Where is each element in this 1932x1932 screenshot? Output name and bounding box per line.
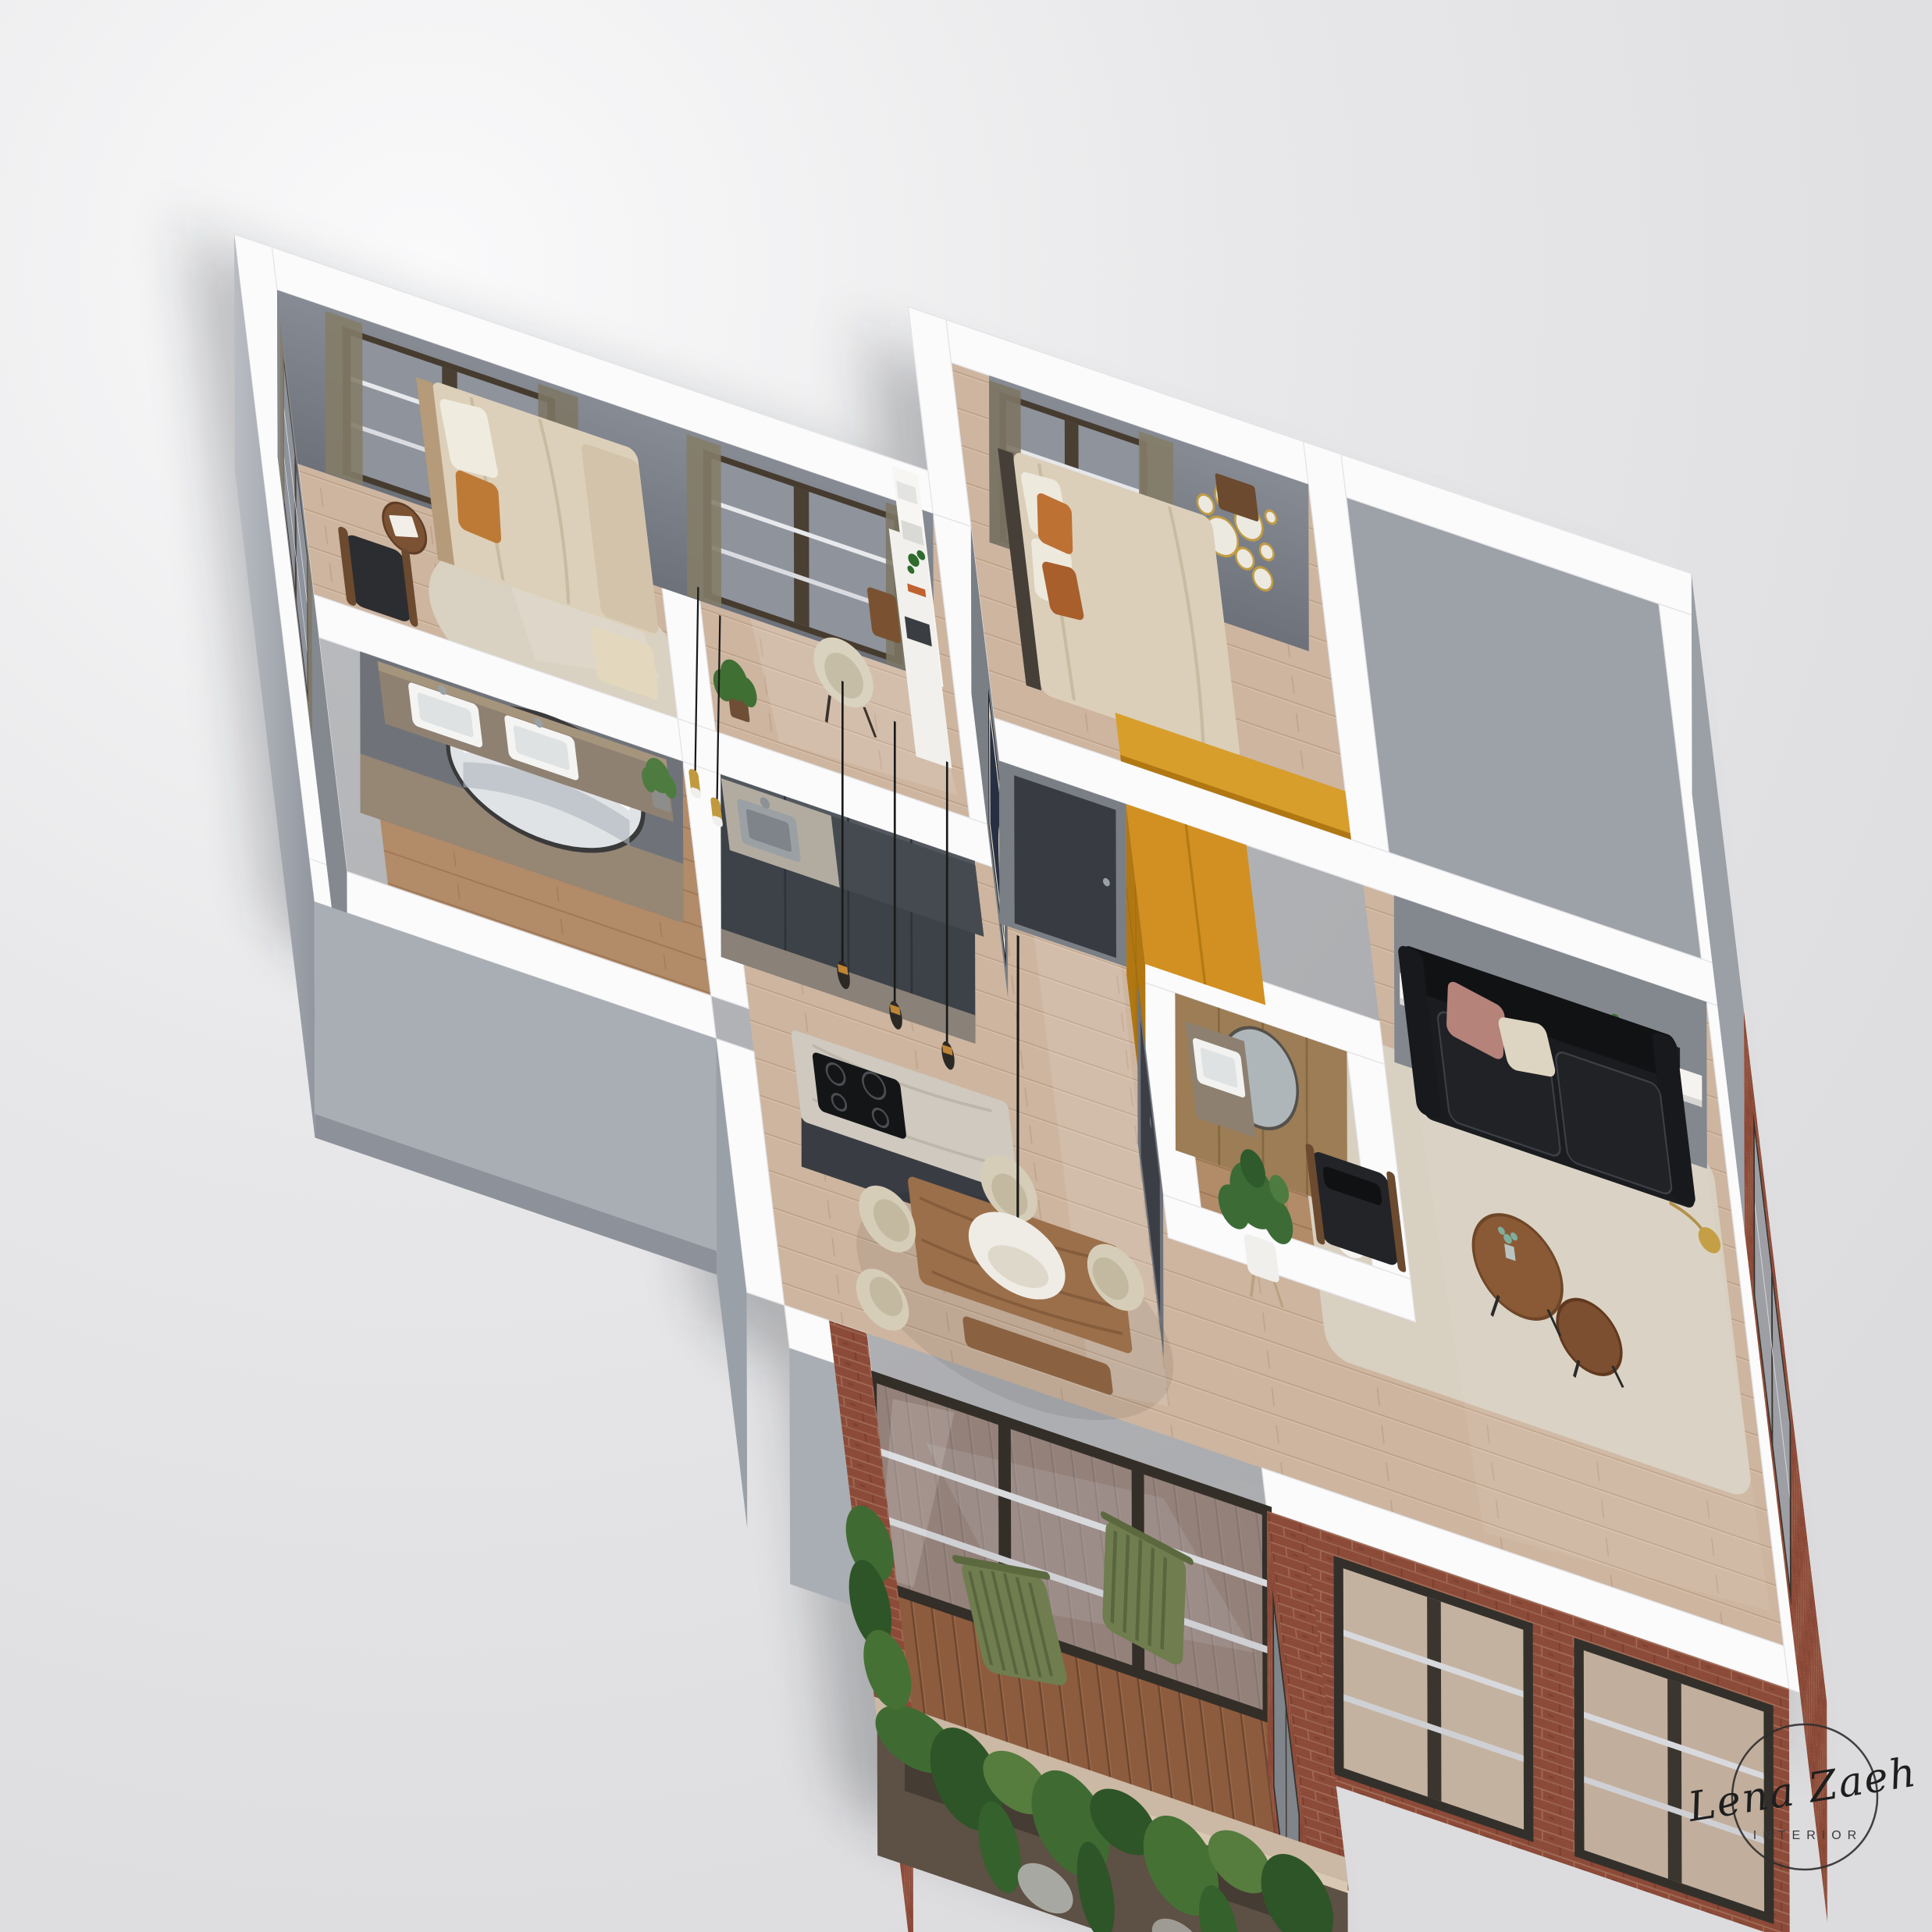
floor-plan-render: Dior [0, 0, 1932, 1932]
logo-tagline: INTERIOR [1753, 1829, 1863, 1842]
